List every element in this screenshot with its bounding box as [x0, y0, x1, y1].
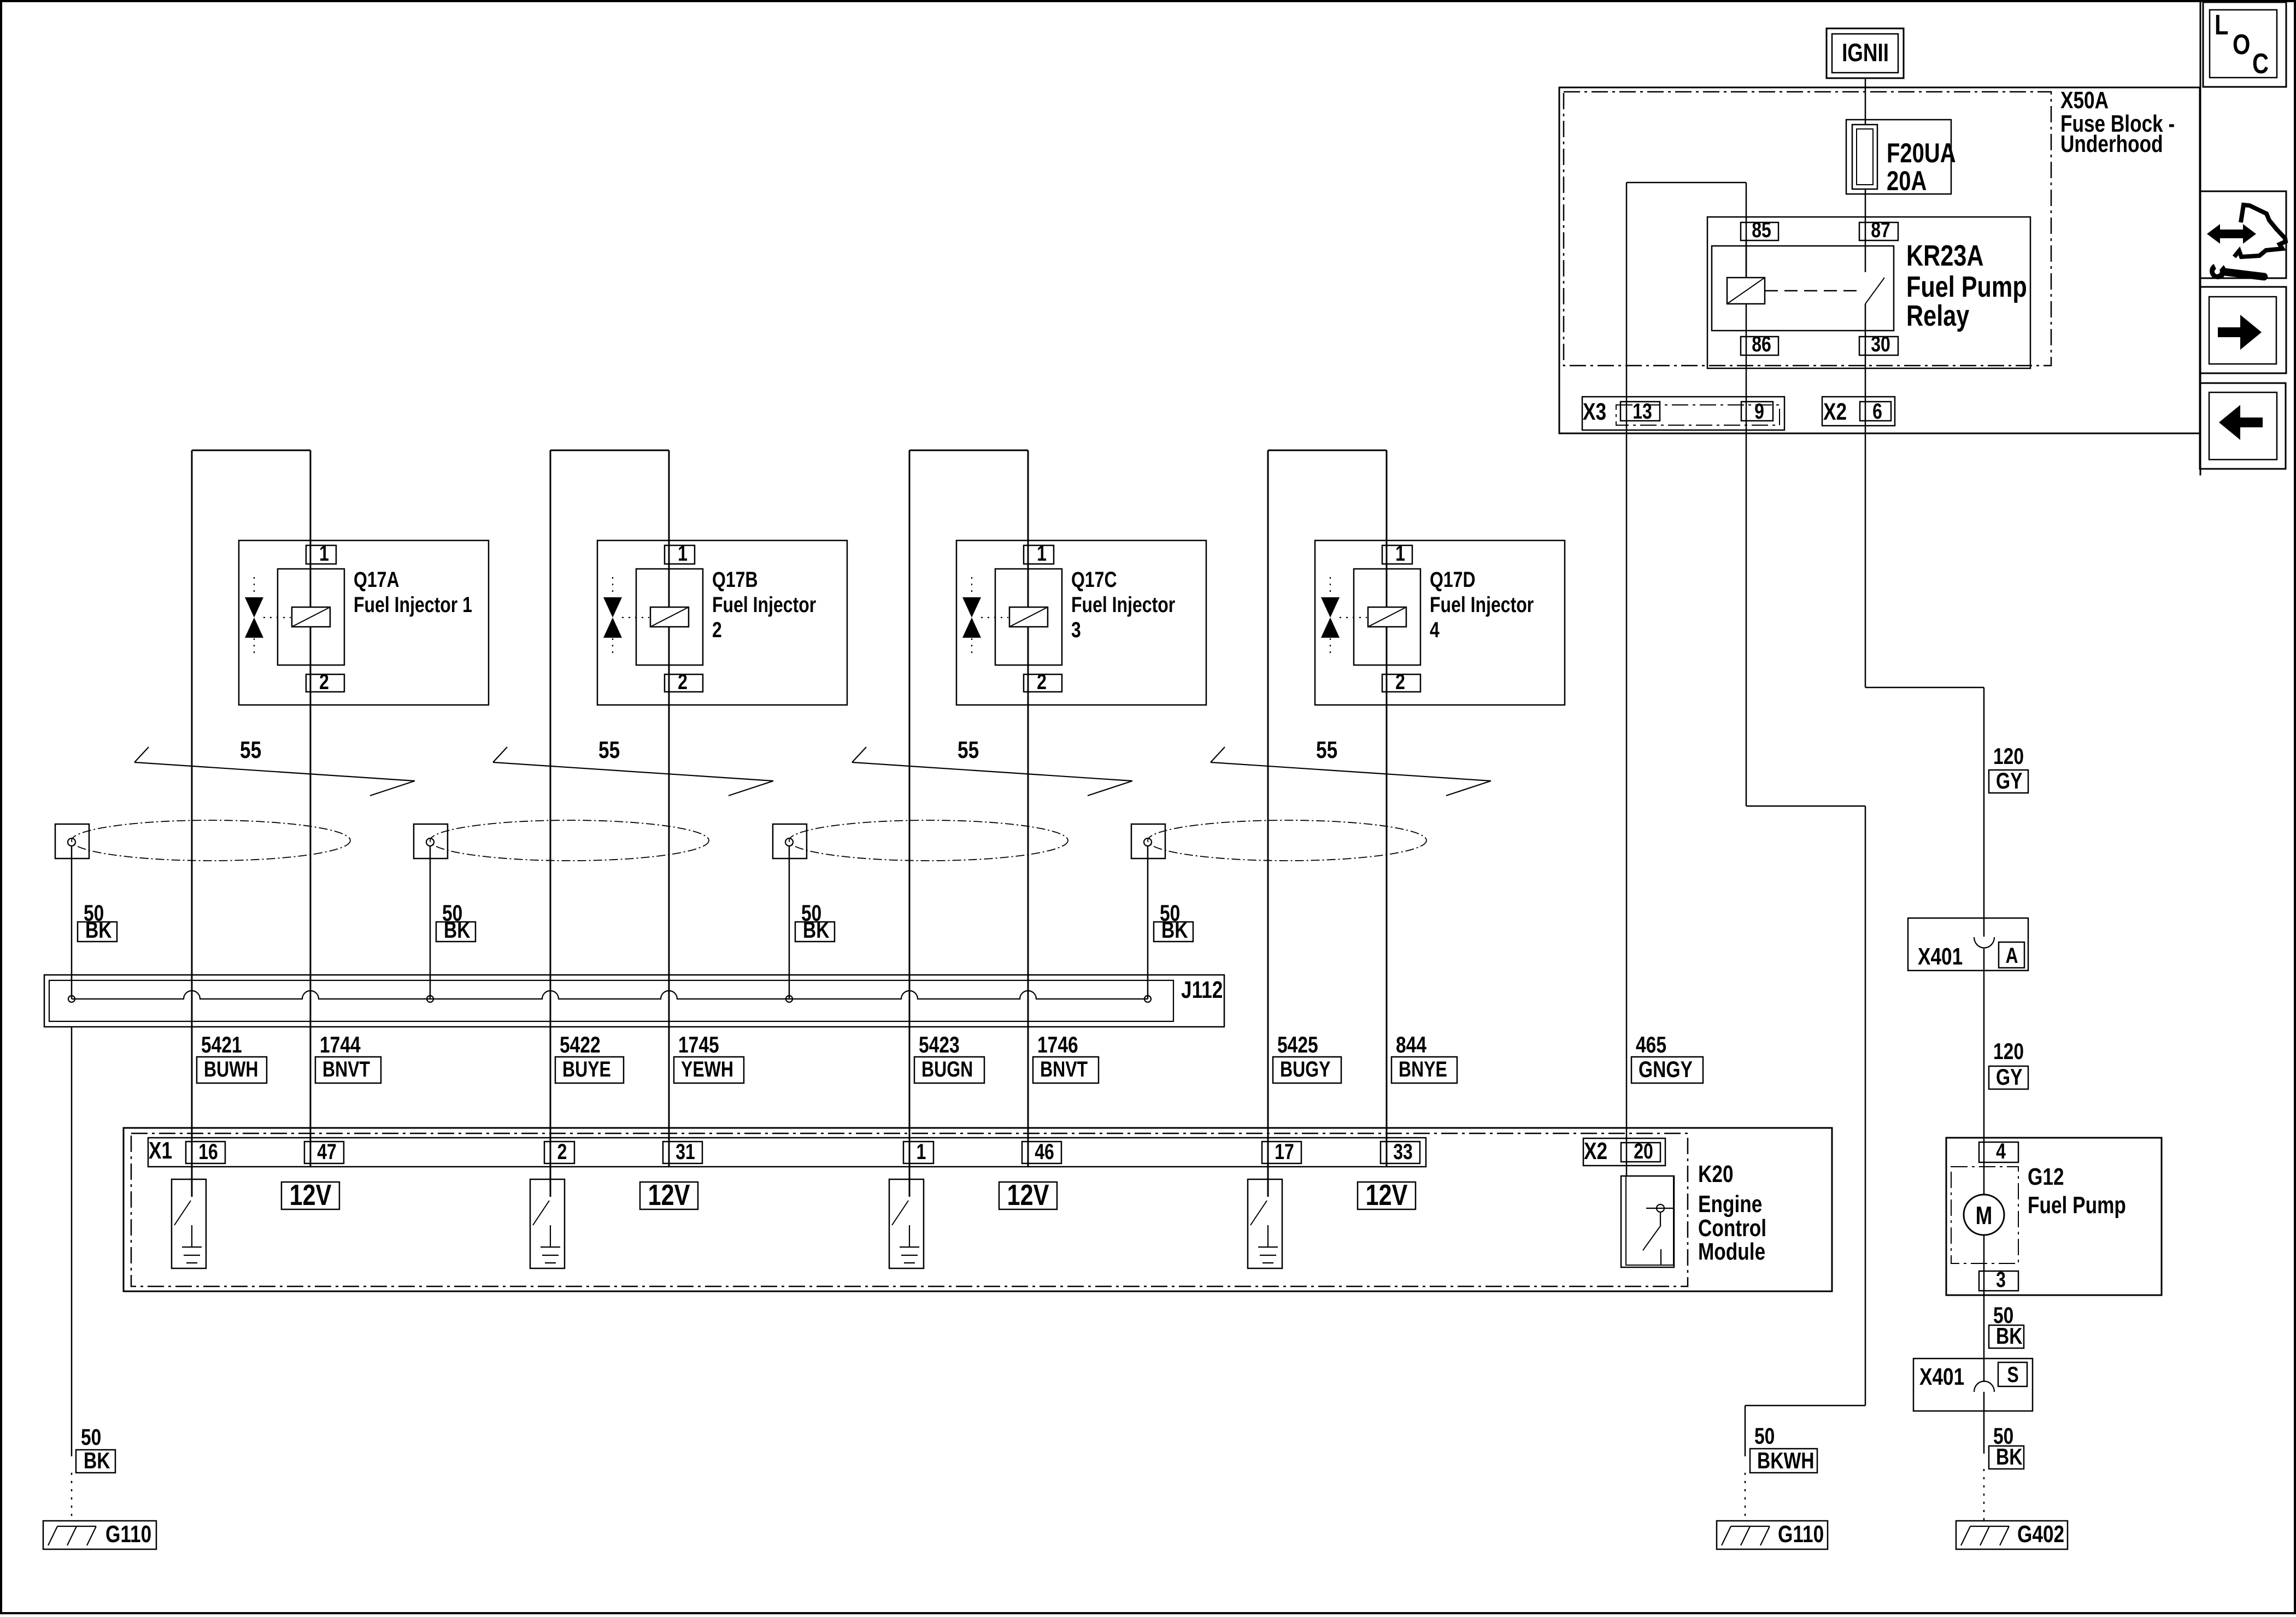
svg-text:120: 120 — [1993, 1039, 2024, 1065]
svg-text:50: 50 — [81, 1425, 101, 1450]
svg-text:YEWH: YEWH — [681, 1057, 733, 1081]
svg-text:BNYE: BNYE — [1399, 1057, 1447, 1081]
svg-text:GNGY: GNGY — [1639, 1057, 1693, 1083]
svg-text:465: 465 — [1636, 1033, 1666, 1058]
svg-text:Engine: Engine — [1698, 1191, 1762, 1218]
svg-text:16: 16 — [198, 1139, 218, 1164]
svg-text:12V: 12V — [648, 1179, 690, 1212]
svg-text:KR23A: KR23A — [1906, 240, 1984, 273]
svg-text:Control: Control — [1698, 1215, 1766, 1242]
svg-text:BKWH: BKWH — [1757, 1449, 1814, 1474]
svg-text:844: 844 — [1396, 1033, 1426, 1058]
svg-text:L: L — [2215, 9, 2228, 41]
svg-text:5421: 5421 — [201, 1033, 242, 1058]
svg-text:X401: X401 — [1918, 943, 1963, 970]
svg-text:1: 1 — [678, 541, 688, 566]
svg-text:BK: BK — [1161, 918, 1188, 943]
svg-text:55: 55 — [958, 737, 979, 763]
svg-text:X401: X401 — [1919, 1363, 1964, 1390]
svg-text:BUGN: BUGN — [921, 1057, 973, 1081]
svg-text:31: 31 — [676, 1139, 695, 1164]
svg-text:K20: K20 — [1698, 1161, 1734, 1187]
svg-text:1: 1 — [319, 541, 329, 566]
svg-text:BK: BK — [803, 918, 830, 943]
svg-text:50: 50 — [1754, 1424, 1775, 1449]
svg-text:2: 2 — [678, 669, 688, 694]
svg-text:46: 46 — [1035, 1139, 1054, 1164]
svg-text:BNVT: BNVT — [322, 1057, 370, 1081]
svg-text:120: 120 — [1993, 744, 2024, 769]
svg-text:13: 13 — [1633, 399, 1652, 424]
svg-text:S: S — [2007, 1362, 2018, 1387]
svg-text:F20UA: F20UA — [1887, 138, 1956, 168]
svg-text:17: 17 — [1275, 1139, 1294, 1164]
svg-text:Fuel Injector: Fuel Injector — [712, 592, 816, 617]
svg-text:Module: Module — [1698, 1238, 1765, 1265]
svg-text:55: 55 — [240, 737, 261, 763]
svg-text:X2: X2 — [1823, 398, 1847, 425]
svg-text:BUGY: BUGY — [1280, 1057, 1330, 1081]
svg-text:IGNII: IGNII — [1842, 38, 1889, 67]
svg-text:2: 2 — [1037, 669, 1047, 694]
svg-text:Q17B: Q17B — [712, 567, 758, 592]
svg-text:O: O — [2233, 28, 2250, 61]
svg-text:2: 2 — [712, 618, 722, 642]
svg-text:Q17A: Q17A — [354, 567, 400, 592]
svg-text:Q17C: Q17C — [1071, 567, 1117, 592]
svg-text:2: 2 — [557, 1139, 567, 1164]
svg-text:55: 55 — [1316, 737, 1337, 763]
svg-text:4: 4 — [1996, 1139, 2006, 1163]
svg-text:J112: J112 — [1181, 977, 1223, 1003]
svg-text:X50A: X50A — [2060, 87, 2109, 114]
svg-text:2: 2 — [1395, 669, 1405, 694]
svg-text:Fuel Injector 1: Fuel Injector 1 — [354, 592, 472, 617]
svg-text:A: A — [2005, 943, 2018, 968]
svg-text:4: 4 — [1430, 618, 1440, 642]
svg-text:87: 87 — [1871, 217, 1890, 242]
svg-text:86: 86 — [1752, 332, 1771, 356]
svg-text:Relay: Relay — [1906, 300, 1969, 333]
svg-text:GY: GY — [1996, 1065, 2023, 1090]
svg-text:G110: G110 — [1778, 1521, 1824, 1548]
svg-text:20: 20 — [1634, 1139, 1653, 1163]
svg-text:12V: 12V — [1007, 1179, 1049, 1212]
svg-text:M: M — [1976, 1201, 1993, 1230]
svg-text:5422: 5422 — [560, 1033, 601, 1058]
svg-text:Fuel Pump: Fuel Pump — [1906, 271, 2027, 304]
svg-text:C: C — [2252, 48, 2269, 80]
svg-text:X1: X1 — [149, 1137, 172, 1164]
svg-text:2: 2 — [319, 669, 329, 694]
svg-text:Underhood: Underhood — [2060, 131, 2163, 157]
svg-text:X2: X2 — [1584, 1138, 1607, 1165]
svg-text:BK: BK — [85, 918, 112, 943]
svg-text:G12: G12 — [2028, 1163, 2064, 1190]
svg-text:BK: BK — [444, 918, 471, 943]
svg-text:1: 1 — [1037, 541, 1047, 566]
svg-text:47: 47 — [317, 1139, 337, 1164]
svg-text:G110: G110 — [105, 1521, 151, 1548]
svg-text:1746: 1746 — [1037, 1033, 1078, 1058]
svg-text:1744: 1744 — [320, 1033, 361, 1058]
svg-text:12V: 12V — [1366, 1179, 1408, 1212]
svg-text:Fuel Injector: Fuel Injector — [1430, 592, 1534, 617]
svg-text:Q17D: Q17D — [1430, 567, 1476, 592]
svg-text:30: 30 — [1871, 332, 1890, 356]
svg-text:1: 1 — [917, 1139, 926, 1164]
svg-text:Fuel Injector: Fuel Injector — [1071, 592, 1175, 617]
svg-text:BUYE: BUYE — [562, 1057, 611, 1081]
svg-text:BK: BK — [84, 1449, 110, 1474]
svg-text:9: 9 — [1754, 399, 1764, 424]
svg-text:BUWH: BUWH — [204, 1057, 259, 1081]
svg-text:3: 3 — [1996, 1267, 2006, 1292]
svg-text:6: 6 — [1872, 399, 1882, 424]
svg-text:GY: GY — [1996, 769, 2023, 794]
svg-text:33: 33 — [1393, 1139, 1413, 1164]
svg-text:5425: 5425 — [1277, 1033, 1318, 1058]
svg-text:1745: 1745 — [678, 1033, 719, 1058]
svg-text:85: 85 — [1752, 217, 1771, 242]
svg-text:X3: X3 — [1583, 398, 1606, 425]
svg-text:12V: 12V — [290, 1179, 332, 1212]
svg-text:BNVT: BNVT — [1040, 1057, 1088, 1081]
svg-text:55: 55 — [598, 737, 620, 763]
svg-text:BK: BK — [1996, 1324, 2023, 1349]
svg-text:G402: G402 — [2017, 1521, 2064, 1548]
svg-text:3: 3 — [1071, 618, 1081, 642]
svg-text:1: 1 — [1395, 541, 1405, 566]
svg-text:5423: 5423 — [919, 1033, 960, 1058]
svg-text:20A: 20A — [1887, 166, 1927, 196]
svg-text:BK: BK — [1996, 1445, 2023, 1470]
svg-text:Fuel Pump: Fuel Pump — [2028, 1192, 2126, 1219]
